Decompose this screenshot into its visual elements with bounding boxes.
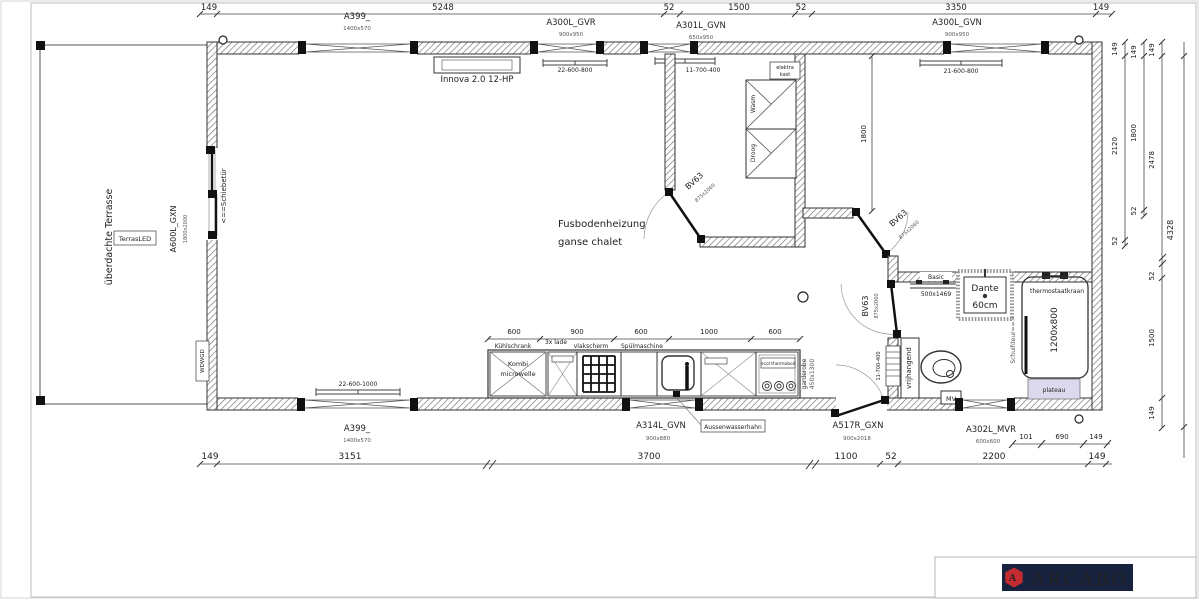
dim-col-right-2: 149 1800 52 (1130, 39, 1147, 219)
thermostat-label: thermostaatkraan (1030, 288, 1084, 295)
dim-r1-2: 52 (1111, 237, 1119, 246)
wdwgd-label: WDWGD (200, 349, 206, 373)
kitchen-dim-2: 600 (634, 328, 647, 336)
dishwasher-label: Spülmaschine (621, 343, 663, 350)
dim-r2-2: 52 (1130, 207, 1138, 216)
terrace-post (36, 396, 45, 405)
dim-top-3: 1500 (728, 3, 750, 13)
bath-vent-label: 11-700-400 (876, 351, 882, 380)
dim-bottom-6: 149 (1088, 452, 1105, 462)
boiler-label: ecol thermoboil (761, 361, 795, 367)
door1-size: 875x2060 (694, 183, 717, 204)
door3-size: 875x2060 (874, 293, 880, 318)
dim-r1-0: 149 (1111, 42, 1119, 55)
dim-bottom-1: 3151 (339, 452, 362, 462)
a301l-gvn-code: A301L_GVN (676, 21, 726, 31)
dim-bi-2: 149 (1089, 433, 1102, 441)
dim-r3-0: 149 (1148, 43, 1156, 56)
dim-col-right-1: 149 2120 52 (1111, 39, 1128, 249)
dim-top-5: 3350 (945, 3, 967, 13)
shower-size: 60cm (972, 301, 997, 311)
a302l-size: 600x600 (976, 439, 1001, 445)
elektra-kast-line2: kast (780, 72, 790, 78)
toilet-label: vrijhangend (905, 347, 913, 389)
outdoor-tap-label: Aussenwasserhahn (704, 424, 762, 431)
dim-top-4: 52 (796, 3, 807, 13)
dim-bi-1: 690 (1055, 433, 1068, 441)
dim-1800-label: 1800 (860, 125, 868, 143)
dim-bottom-4: 52 (885, 452, 896, 462)
a517r-size: 900x2018 (843, 436, 871, 442)
fridge-label: Kühlschrank (495, 343, 532, 350)
dim-r3-1: 2478 (1148, 151, 1156, 169)
basin-size: 500x1469 (921, 291, 951, 298)
dim-bottom-2: 3700 (638, 452, 661, 462)
bathroom: BV63 875x2060 11-700-400 Basic 500x1469 … (841, 256, 1092, 404)
dim-top-0: 149 (201, 3, 217, 13)
shower-brand: Dante (971, 284, 999, 294)
a300l-gvr-code: A300L_GVR (546, 18, 595, 28)
innova-label: Innova 2.0 12-HP (440, 75, 513, 85)
a399-bottom-size: 1400x570 (343, 438, 371, 444)
dim-bi-0: 101 (1019, 433, 1032, 441)
dim-r3-4: 149 (1148, 406, 1156, 419)
a314l-code: A314L_GVN (636, 421, 686, 431)
a300l-gvr-size: 900x950 (559, 32, 584, 38)
wall-right (1092, 42, 1102, 410)
dim-r2-0: 149 (1130, 45, 1138, 58)
dim-row-bottom-inner: 101 690 149 (1009, 433, 1111, 448)
kitchen: 600 900 600 1000 600 Kühlschrank 3x lade… (485, 328, 816, 398)
kitchen-dim-1: 900 (570, 328, 583, 336)
dim-top-2: 52 (664, 3, 675, 13)
door1-code: BV63 (684, 171, 706, 192)
elektra-kast-line1: elektra (776, 65, 794, 71)
door2-size: 875x2060 (898, 220, 921, 241)
dim-r3-3: 1500 (1148, 329, 1156, 347)
dim-right-total: 4328 (1166, 220, 1175, 240)
a314l-size: 900x880 (646, 436, 671, 442)
dim-interior-1800: 1800 (860, 53, 875, 214)
vent-22-600-800: 22-600-800 (558, 67, 593, 74)
drawers-label: 3x lade (545, 339, 567, 346)
dim-bottom-5: 2200 (983, 452, 1006, 462)
washer-label: Wasm (750, 95, 757, 113)
dim-r1-1: 2120 (1111, 137, 1119, 155)
dim-top-6: 149 (1093, 3, 1109, 13)
shower-door-label: Schuifdeur==> (1010, 316, 1017, 363)
a399-top-size: 1400x570 (343, 26, 371, 32)
brand-name: ARCABO (1031, 569, 1128, 590)
sliding-window-size: 1800x2000 (183, 215, 189, 243)
floor-plan-sheet: überdachte Terrasse TerrasLED A600L_GXN … (0, 0, 1200, 600)
a399-bottom-code: A399_ (344, 424, 371, 434)
sliding-window-code: A600L_GXN (169, 206, 178, 253)
vent-22-600-1000: 22-600-1000 (339, 381, 378, 388)
dim-row-top: 149 5248 52 1500 52 3350 149 (197, 3, 1115, 17)
floor-plan-drawing: überdachte Terrasse TerrasLED A600L_GXN … (0, 0, 1200, 600)
a300l-gvn-code: A300L_GVN (932, 18, 982, 28)
a302l-code: A302L_MVR (966, 425, 1016, 435)
fridge-line2: microwelle (500, 370, 535, 378)
dim-r3-2: 52 (1148, 272, 1156, 281)
dim-r2-1: 1800 (1130, 124, 1138, 142)
tray-size-label: 1200x800 (1050, 307, 1060, 353)
floor-heating-note-line1: Fusbodenheizung (558, 219, 646, 230)
plateau-label: plateau (1043, 387, 1066, 394)
outdoor-tap-marker (673, 391, 680, 397)
a399-top-code: A399_ (344, 12, 371, 22)
a517r-code: A517R_GXN (833, 421, 884, 431)
a301l-gvn-size: 650x950 (689, 35, 714, 41)
dim-top-1: 5248 (432, 3, 454, 13)
innova-unit: Innova 2.0 12-HP (434, 57, 520, 85)
basin-counter (910, 284, 956, 288)
hall-wall: BV63 875x2060 (803, 208, 921, 258)
kitchen-dim-3: 1000 (700, 328, 718, 336)
dim-row-bottom: 149 3151 3700 1100 52 2200 149 (197, 452, 1112, 469)
door3-code: BV63 (861, 296, 870, 317)
kitchen-dim-0: 600 (507, 328, 520, 336)
terras-led-label: TerrasLED (118, 235, 151, 243)
a300l-gvn-size: 900x950 (945, 32, 970, 38)
basin-label: Basic (928, 274, 944, 281)
vent-11-700-400: 11-700-400 (686, 67, 721, 74)
wardrobe-size: 450x1300 (809, 359, 816, 389)
kitchen-dim-4: 600 (768, 328, 781, 336)
floor-heating-note-line2: ganse chalet (558, 237, 622, 248)
sliding-door-label: <==Schiebetür (220, 168, 228, 224)
image-border (1, 1, 1198, 598)
floor-sensor-marker (798, 292, 808, 302)
dim-bottom-0: 149 (201, 452, 218, 462)
vent-21-600-800: 21-600-800 (944, 68, 979, 75)
brand-logo-letter: A (1009, 573, 1019, 584)
dim-col-right-4: 4328 (1166, 42, 1187, 458)
dim-bottom-3: 1100 (835, 452, 858, 462)
title-block: A ARCABO (935, 557, 1196, 598)
mv-label: MV (946, 395, 957, 403)
door-bv63-tech: BV63 875x2060 (644, 171, 717, 243)
fridge-line1: Kombi (508, 360, 528, 368)
sheet-frame-border (31, 3, 1196, 597)
wardrobe-label: garderobe (801, 358, 808, 389)
panel-label: vlakscherm (574, 343, 609, 350)
dryer-label: Droog (750, 144, 757, 162)
dim-col-right-3: 149 2478 52 1500 149 (1148, 39, 1166, 431)
terrace-label: überdachte Terrasse (104, 189, 115, 286)
terrace-post (36, 41, 45, 50)
